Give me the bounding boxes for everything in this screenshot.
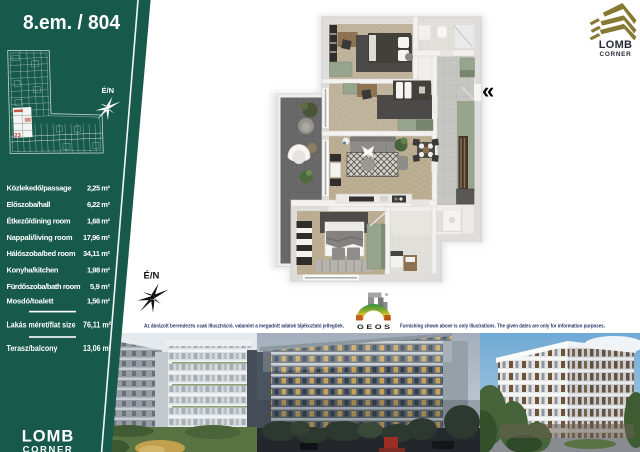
svg-text:Furnishing shown above is only: Furnishing shown above is only illustrat…	[400, 324, 605, 330]
svg-text:1,56 m²: 1,56 m²	[87, 297, 111, 306]
svg-text:Konyha/kitchen: Konyha/kitchen	[7, 266, 59, 275]
svg-text:CORNER: CORNER	[23, 445, 74, 452]
svg-text:Közlekedő/passage: Közlekedő/passage	[7, 184, 72, 193]
svg-text:É/N: É/N	[144, 271, 160, 282]
svg-text:1,68 m²: 1,68 m²	[87, 216, 111, 225]
svg-text:«: «	[482, 78, 494, 103]
svg-text:13,06 m²: 13,06 m²	[83, 343, 111, 353]
svg-text:Hálószoba/bed room: Hálószoba/bed room	[7, 249, 76, 258]
svg-text:Előszoba/hall: Előszoba/hall	[7, 200, 51, 209]
svg-text:Fürdőszoba/bath room: Fürdőszoba/bath room	[7, 282, 81, 291]
svg-text:G E O S: G E O S	[357, 324, 391, 331]
svg-text:Terasz/balcony: Terasz/balcony	[7, 343, 58, 353]
svg-text:2,25 m²: 2,25 m²	[87, 184, 111, 193]
svg-text:34,11 m²: 34,11 m²	[83, 249, 111, 258]
svg-text:Az ábrázolt berendezés csak il: Az ábrázolt berendezés csak illusztráció…	[144, 324, 344, 330]
svg-text:5,9 m²: 5,9 m²	[90, 282, 111, 291]
svg-text:23: 23	[14, 133, 22, 139]
svg-text:Lakás méret/flat size: Lakás méret/flat size	[7, 320, 76, 330]
svg-text:6,22 m²: 6,22 m²	[87, 200, 111, 209]
svg-text:76,11 m²: 76,11 m²	[83, 320, 111, 330]
svg-text:É/N: É/N	[102, 86, 115, 95]
svg-text:LOMB: LOMB	[22, 428, 75, 446]
svg-text:1,98 m²: 1,98 m²	[87, 266, 111, 275]
svg-text:17,96 m²: 17,96 m²	[83, 233, 111, 242]
svg-text:LOMB: LOMB	[599, 39, 633, 51]
svg-text:Étkező/dining room: Étkező/dining room	[7, 216, 71, 225]
svg-text:8.em. / 804: 8.em. / 804	[23, 12, 121, 34]
svg-text:Nappali/living room: Nappali/living room	[7, 233, 73, 242]
svg-text:CORNER: CORNER	[600, 51, 632, 58]
svg-text:Mosdó/toalett: Mosdó/toalett	[7, 297, 55, 306]
